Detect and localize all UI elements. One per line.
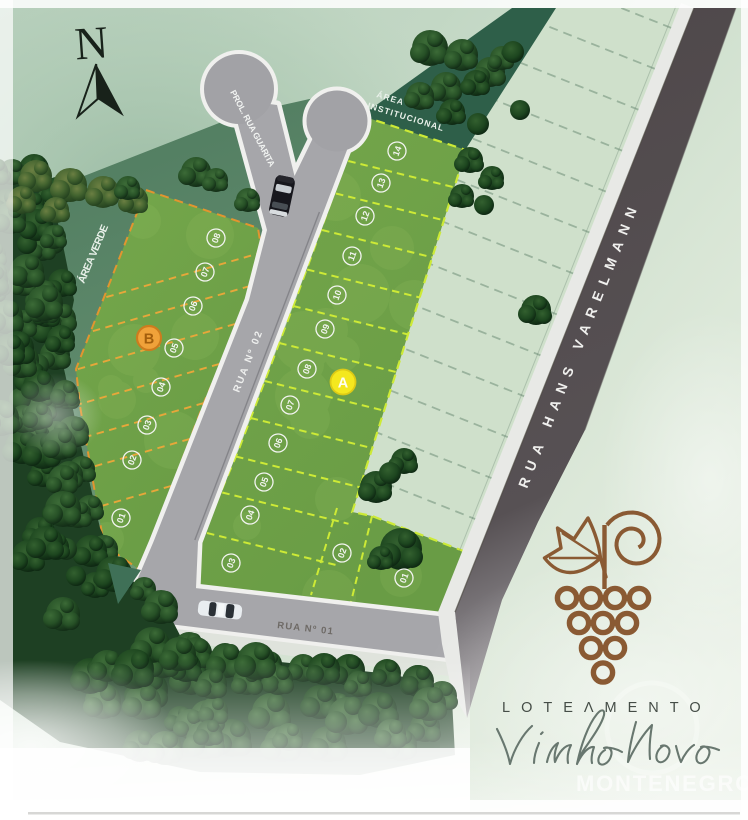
svg-text:LOTEΛMENTO: LOTEΛMENTO: [502, 700, 712, 716]
svg-text:A: A: [338, 376, 349, 392]
svg-text:B: B: [144, 332, 154, 348]
svg-text:N: N: [73, 16, 110, 69]
svg-text:MONTENEGRO: MONTENEGRO: [576, 771, 748, 796]
